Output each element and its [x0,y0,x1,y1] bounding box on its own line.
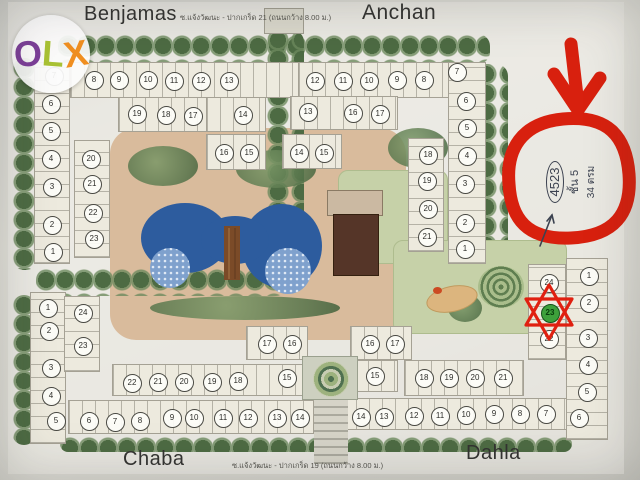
building-marker-5: 5 [458,119,477,138]
building-marker-22: 22 [540,330,559,349]
clubhouse-roof [327,190,383,216]
building-marker-8: 8 [131,412,150,431]
soi-label-top: ซ.แจ้งวัฒนะ - ปากเกร็ด 21 (ถนนกว้าง 8.00… [180,12,331,24]
bush-band-middle-left [36,268,288,296]
building-marker-9: 9 [485,405,504,424]
building-marker-23: 23 [541,304,560,323]
central-plaza [302,356,358,400]
building-marker-10: 10 [139,71,158,90]
building-marker-6: 6 [80,412,99,431]
building-marker-12: 12 [239,409,258,428]
building-marker-3: 3 [43,178,62,197]
building-marker-20: 20 [82,150,101,169]
building-marker-14: 14 [234,106,253,125]
building-marker-21: 21 [418,228,437,247]
street-label-dahla: Dahla [466,442,521,465]
building-marker-9: 9 [163,409,182,428]
building-marker-16: 16 [361,335,380,354]
building-marker-24: 24 [540,274,559,293]
building-marker-16: 16 [283,335,302,354]
building-marker-22: 22 [123,374,142,393]
building-marker-11: 11 [214,409,233,428]
building-marker-18: 18 [157,106,176,125]
handwritten-note: 4523 ชั้น 5 34 ตรม [532,134,612,230]
building-marker-20: 20 [175,373,194,392]
building-marker-6: 6 [570,409,589,428]
building-marker-20: 20 [419,200,438,219]
building-marker-6: 6 [42,95,61,114]
building-marker-13: 13 [375,408,394,427]
building-marker-9: 9 [388,71,407,90]
bush [150,296,340,320]
building-marker-15: 15 [240,144,259,163]
building-wing [70,62,310,98]
building-marker-1: 1 [44,243,63,262]
building-marker-18: 18 [229,372,248,391]
building-marker-19: 19 [128,105,147,124]
building-marker-15: 15 [315,144,334,163]
building-marker-6: 6 [457,92,476,111]
building-marker-1: 1 [39,299,58,318]
building-marker-2: 2 [456,214,475,233]
street-label-anchan: Anchan [362,1,436,25]
building-marker-17: 17 [258,335,277,354]
building-marker-16: 16 [344,104,363,123]
building-marker-21: 21 [149,373,168,392]
building-marker-23: 23 [85,230,104,249]
floor-note: ชั้น 5 [565,170,583,194]
building-marker-22: 22 [84,204,103,223]
building-marker-3: 3 [456,175,475,194]
building-marker-13: 13 [220,72,239,91]
building-marker-18: 18 [415,369,434,388]
building-marker-5: 5 [578,383,597,402]
building-marker-13: 13 [268,409,287,428]
building-marker-9: 9 [110,71,129,90]
building-marker-10: 10 [457,406,476,425]
building-marker-16: 16 [215,144,234,163]
bush [128,146,198,186]
olx-letter: X [61,34,90,73]
clubhouse [333,214,379,276]
building-marker-5: 5 [47,412,66,431]
street-label-chaba: Chaba [123,448,184,471]
olx-letter: O [13,35,43,72]
building-marker-19: 19 [440,369,459,388]
area-note: 34 ตรม [584,166,599,198]
building-marker-14: 14 [290,144,309,163]
playground-equipment [433,287,442,294]
building-marker-10: 10 [360,72,379,91]
building-marker-2: 2 [40,322,59,341]
building-marker-12: 12 [192,72,211,91]
building-marker-5: 5 [42,122,61,141]
building-marker-19: 19 [418,172,437,191]
building-marker-4: 4 [42,150,61,169]
building-marker-12: 12 [306,72,325,91]
building-marker-10: 10 [185,409,204,428]
building-marker-18: 18 [419,146,438,165]
building-marker-7: 7 [537,405,556,424]
building-marker-17: 17 [184,107,203,126]
unit-number: 4523 [546,161,564,204]
building-marker-4: 4 [458,147,477,166]
building-marker-11: 11 [431,407,450,426]
building-marker-2: 2 [580,294,599,313]
building-marker-3: 3 [579,329,598,348]
soi-label-bottom: ซ.แจ้งวัฒนะ - ปากเกร็ด 19 (ถนนกว้าง 8.00… [232,460,383,472]
building-marker-21: 21 [494,369,513,388]
building-marker-1: 1 [580,267,599,286]
south-avenue [314,400,348,464]
building-marker-15: 15 [366,367,385,386]
building-marker-19: 19 [203,373,222,392]
building-marker-4: 4 [579,356,598,375]
building-marker-17: 17 [386,335,405,354]
olx-watermark-logo: OLX [12,15,90,93]
building-marker-20: 20 [466,369,485,388]
building-marker-13: 13 [299,103,318,122]
building-marker-11: 11 [334,72,353,91]
building-marker-24: 24 [74,304,93,323]
building-marker-3: 3 [42,359,61,378]
building-marker-14: 14 [291,409,310,428]
street-label-benjamas: Benjamas [84,3,177,26]
building-marker-1: 1 [456,240,475,259]
building-marker-7: 7 [448,63,467,82]
building-marker-15: 15 [278,369,297,388]
building-marker-21: 21 [83,175,102,194]
spiral-hedge [478,266,524,308]
building-marker-14: 14 [352,408,371,427]
building-marker-2: 2 [43,216,62,235]
building-marker-8: 8 [85,71,104,90]
building-marker-11: 11 [165,72,184,91]
building-marker-8: 8 [415,71,434,90]
building-marker-12: 12 [405,407,424,426]
building-marker-23: 23 [74,337,93,356]
building-marker-7: 7 [106,413,125,432]
building-marker-4: 4 [42,387,61,406]
site-plan-photo: 7891011121365432119181714161520212223121… [0,0,640,480]
building-marker-17: 17 [371,105,390,124]
building-marker-8: 8 [511,405,530,424]
